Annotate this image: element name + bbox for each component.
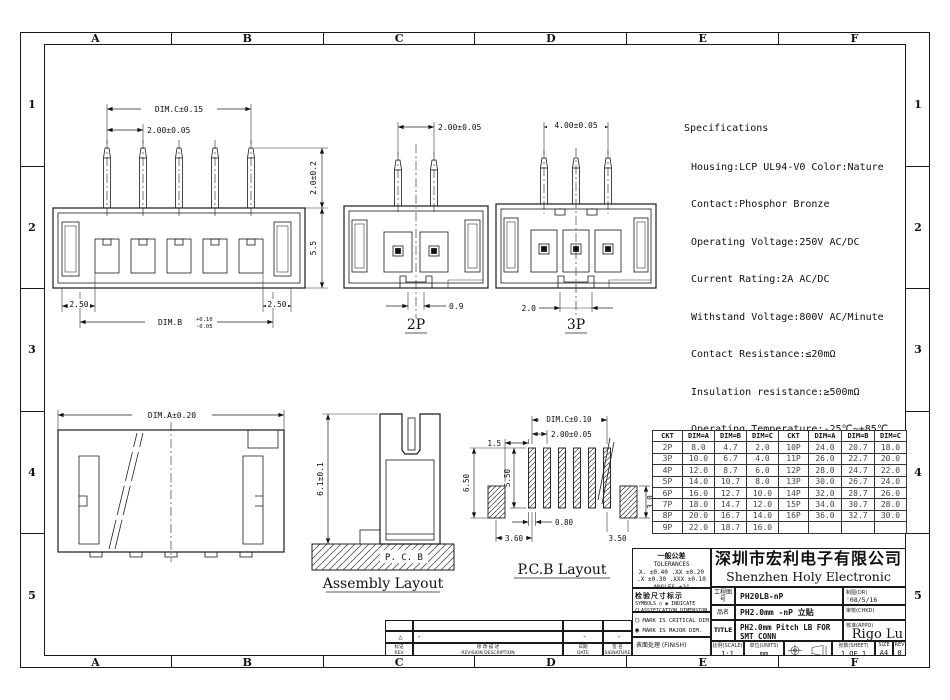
grid-band-right: 1 2 3 4 5 <box>906 44 930 656</box>
dim-label: 6.50 <box>462 473 471 492</box>
header-cn: 标记 <box>395 645 404 650</box>
spec-line: Operating Voltage:250V AC/DC <box>684 237 906 250</box>
units-label: 单位(UNITS) <box>745 642 783 649</box>
dim-label: 3.50 <box>608 534 627 543</box>
dim-label: 2.0 <box>522 304 537 313</box>
critical-dim-text: MARK IS CRITICAL DIM <box>643 618 709 624</box>
pcb-label: P. C. B <box>385 553 423 563</box>
table-cell: 36.0 <box>809 510 842 521</box>
table-header: DIM=A <box>809 431 842 442</box>
table-header: DIM=A <box>683 431 715 442</box>
scale-value: 1:1 <box>712 650 743 656</box>
assembly-layout-label: Assembly Layout <box>322 576 444 592</box>
spec-line: Withstand Voltage:800V AC/Minute <box>684 312 906 325</box>
table-cell: 10P <box>779 442 809 453</box>
table-cell: 34.0 <box>809 499 842 510</box>
pcb-layout-drawing: DIM.C±0.10 2.00±0.05 1.5 6.50 5.50 0.80 … <box>452 410 657 588</box>
spec-line: Contact Resistance:≤20mΩ <box>684 349 906 362</box>
grid-col-label: F <box>779 656 930 668</box>
table-header: CKT <box>653 431 683 442</box>
table-cell: 15P <box>779 499 809 510</box>
table-header: DIM=B <box>715 431 747 442</box>
tolerances-title-cn: 一般公差 <box>658 552 686 560</box>
grid-row-label: 3 <box>20 289 44 412</box>
table-cell: 18.0 <box>683 499 715 510</box>
dim-label: 0.80 <box>555 518 574 527</box>
table-row: 5P14.010.78.013P30.026.724.0 <box>653 476 907 487</box>
table-cell: 14.7 <box>715 499 747 510</box>
spec-line: Insulation resistance:≥500mΩ <box>684 387 906 400</box>
title-line2: SMT CONN <box>740 632 776 641</box>
table-cell: 16.0 <box>747 522 779 533</box>
title-label: TITLE <box>711 620 735 641</box>
grid-row-label: 4 <box>20 412 44 535</box>
dim-label: DIM.C±0.10 <box>546 415 592 424</box>
table-cell: 32.7 <box>842 510 875 521</box>
spec-line: Contact:Phosphor Bronze <box>684 199 906 212</box>
view-label-2p: 2P <box>407 317 425 333</box>
table-cell <box>875 522 907 533</box>
rev-label: REV <box>894 642 905 648</box>
grid-row-label: 2 <box>906 167 930 290</box>
dim-tolerance-upper: +0.10 <box>196 317 213 323</box>
drawn-cell: 制图(DR) '08/5/16 <box>843 587 906 605</box>
inspection-title-cn: 检验尺寸标示 <box>635 592 683 600</box>
table-cell: 4.0 <box>747 453 779 464</box>
critical-dim-icon: ◯ <box>635 616 639 624</box>
title-line1: PH2.0mm Pitch LB FOR <box>740 623 830 632</box>
specifications-block: Specifications Housing:LCP UL94-V0 Color… <box>684 98 906 462</box>
table-cell: 16P <box>779 510 809 521</box>
header-cn: 日期 <box>579 645 588 650</box>
finish-cell: 表面处理 (FINISH) <box>632 637 711 656</box>
grid-col-label: D <box>475 32 627 44</box>
dimension-table: CKT DIM=A DIM=B DIM=C CKT DIM=A DIM=B DI… <box>652 430 907 534</box>
scale-label: 比例(SCALE) <box>712 642 743 649</box>
table-header: DIM=B <box>842 431 875 442</box>
revision-desc: - <box>413 631 563 643</box>
table-cell: 30.0 <box>809 476 842 487</box>
projection-symbol-cell <box>784 641 832 656</box>
table-cell: 22.0 <box>683 522 715 533</box>
dimensions-5p: DIM.C±0.15 2.00±0.05 2.0±0.2 5.5 2.50 2.… <box>62 102 328 330</box>
title-value-cell: PH2.0mm Pitch LB FOR SMT CONN <box>735 620 843 641</box>
table-cell: 18.0 <box>875 442 907 453</box>
table-cell: 10.0 <box>747 487 779 498</box>
table-cell: 22.0 <box>875 465 907 476</box>
major-dim-icon: ◉ <box>635 626 639 634</box>
grid-col-label: B <box>172 656 324 668</box>
header-en: REVISION DESCRIPTION <box>461 651 514 656</box>
dim-tolerance-lower: -0.05 <box>196 324 213 330</box>
inspection-line: SYMBOLS ◯ ◉ INDICATE <box>635 601 695 607</box>
dimensions-3p: 4.00±0.05 2.0 <box>522 119 613 313</box>
dim-label: 2.00±0.05 <box>551 430 592 439</box>
dim-label: DIM.B <box>158 318 182 327</box>
dim-label: 4.00±0.05 <box>554 121 598 130</box>
revision-header-rev: 标记 REV <box>385 643 413 656</box>
revision-mark: △ <box>385 631 413 643</box>
table-header: DIM=C <box>875 431 907 442</box>
sheet-cell: 张数(SHEET) 1 OF 1 <box>832 641 875 656</box>
units-value: mm <box>745 650 783 656</box>
table-cell: 26.0 <box>809 453 842 464</box>
scale-cell: 比例(SCALE) 1:1 <box>711 641 744 656</box>
dim-label: 3.60 <box>505 534 524 543</box>
major-dim-text: MARK IS MAJOR DIM. <box>643 628 703 634</box>
rev-value: 0 <box>894 649 905 656</box>
spec-line: Housing:LCP UL94-V0 Color:Nature <box>684 162 906 175</box>
front-view-3p-drawing: 4.00±0.05 2.0 3P <box>489 114 667 338</box>
view-label-3p: 3P <box>567 317 585 333</box>
table-cell: 24.0 <box>875 476 907 487</box>
dim-label: 0.9 <box>449 302 464 311</box>
part-no-value: PH20LB-nP <box>735 587 843 605</box>
revision-header-desc: 修 改 描 述 REVISION DESCRIPTION <box>413 643 563 656</box>
grid-band-bottom: A B C D E F <box>20 656 930 668</box>
tolerances-title: TOLERANCES <box>653 561 689 568</box>
assembly-top-view-drawing: DIM.A±0.20 <box>52 404 292 572</box>
inspection-symbols-cell: 检验尺寸标示 SYMBOLS ◯ ◉ INDICATE CLASSIFICATI… <box>632 588 711 612</box>
table-cell: 24.0 <box>809 442 842 453</box>
front-view-2p-drawing: 2.00±0.05 0.9 2P <box>336 114 501 338</box>
grid-col-label: A <box>20 656 172 668</box>
table-cell: 20.0 <box>875 453 907 464</box>
units-cell: 单位(UNITS) mm <box>744 641 784 656</box>
grid-col-label: F <box>779 32 930 44</box>
table-cell <box>809 522 842 533</box>
table-cell: 4.7 <box>715 442 747 453</box>
revision-strip: △ - - - 标记 REV 修 改 描 述 REVISION DESCRIPT… <box>385 620 632 656</box>
rev-cell: REV 0 <box>893 641 906 656</box>
dim-label: 6.1±0.1 <box>316 462 325 496</box>
table-cell: 26.0 <box>875 487 907 498</box>
table-cell: 9P <box>653 522 683 533</box>
size-label: SIZE <box>876 642 892 648</box>
third-angle-projection-icon <box>785 644 831 656</box>
dim-label: 2.50 <box>69 300 88 309</box>
grid-row-label: 5 <box>20 534 44 656</box>
table-cell: 8P <box>653 510 683 521</box>
dim-label: 2.00±0.05 <box>147 126 191 135</box>
sheet-value: 1 OF 1 <box>833 650 874 656</box>
dim-label: 1.5 <box>487 439 501 448</box>
tolerances-cell: 一般公差 TOLERANCES X. ±0.40 .XX ±0.20 .X ±0… <box>632 548 711 588</box>
connector-side-outline <box>360 414 440 544</box>
table-cell: 11P <box>779 453 809 464</box>
dim-label: 5.5 <box>309 241 318 256</box>
table-cell: 28.0 <box>875 499 907 510</box>
grid-row-label: 4 <box>906 412 930 535</box>
table-cell: 30.0 <box>875 510 907 521</box>
finish-label: 表面处理 (FINISH) <box>636 642 686 649</box>
table-row: 2P8.04.72.010P24.020.718.0 <box>653 442 907 453</box>
table-cell: 6P <box>653 487 683 498</box>
table-cell: 26.7 <box>842 476 875 487</box>
grid-row-label: 1 <box>906 44 930 167</box>
dim-label: 2.00±0.05 <box>438 123 482 132</box>
grid-band-left: 1 2 3 4 5 <box>20 44 44 656</box>
product-name-value: PH2.0mm -nP 立贴 <box>735 605 843 620</box>
checked-cell: 审核(CHKD) <box>843 605 906 620</box>
grid-row-label: 1 <box>20 44 44 167</box>
header-en: REV <box>394 651 403 656</box>
table-cell: 16.0 <box>683 487 715 498</box>
table-cell: 16.7 <box>715 510 747 521</box>
table-cell: 13P <box>779 476 809 487</box>
product-name-label: 品名 <box>711 605 735 620</box>
table-cell: 10.7 <box>715 476 747 487</box>
size-cell: SIZE A4 <box>875 641 893 656</box>
header-cn: 签 名 <box>612 645 622 650</box>
revision-date: - <box>563 631 603 643</box>
header-en: SIGNATURE <box>605 651 631 656</box>
table-cell: 28.0 <box>809 465 842 476</box>
header-cn: 修 改 描 述 <box>477 645 499 650</box>
housing-outline <box>58 422 284 562</box>
sheet-label: 张数(SHEET) <box>833 642 874 649</box>
tolerance-line: .X ±0.30 .XXX ±0.10 <box>637 576 706 583</box>
table-cell: 22.7 <box>842 453 875 464</box>
table-cell: 20.7 <box>842 442 875 453</box>
table-cell: 8.7 <box>715 465 747 476</box>
table-cell: 3P <box>653 453 683 464</box>
table-row: 7P18.014.712.015P34.030.728.0 <box>653 499 907 510</box>
table-cell: 12P <box>779 465 809 476</box>
dim-label: DIM.C±0.15 <box>155 105 203 114</box>
table-cell: 5P <box>653 476 683 487</box>
table-cell: 10.0 <box>683 453 715 464</box>
company-cell: 深圳市宏利电子有限公司 Shenzhen Holy Electronic Co.… <box>711 548 906 587</box>
table-cell: 2.0 <box>747 442 779 453</box>
revision-header-sig: 签 名 SIGNATURE <box>603 643 632 656</box>
specifications-title: Specifications <box>684 123 906 136</box>
part-no-label: 工程图号 <box>711 587 735 605</box>
table-header: CKT <box>779 431 809 442</box>
approved-cell: 核准(APPD) Rigo Lu <box>843 620 906 641</box>
checked-label: 审核(CHKD) <box>846 607 905 614</box>
grid-row-label: 2 <box>20 167 44 290</box>
table-cell: 14.0 <box>683 476 715 487</box>
title-block: 一般公差 TOLERANCES X. ±0.40 .XX ±0.20 .X ±0… <box>632 548 906 656</box>
pcb-layout-label: P.C.B Layout <box>517 562 606 578</box>
revision-sig: - <box>603 631 632 643</box>
table-cell: 7P <box>653 499 683 510</box>
company-name-cn: 深圳市宏利电子有限公司 <box>712 549 905 569</box>
header-en: DATE <box>577 651 589 656</box>
grid-col-label: E <box>627 32 779 44</box>
table-cell: 20.0 <box>683 510 715 521</box>
table-row: 6P16.012.710.014P32.028.726.0 <box>653 487 907 498</box>
drawing-sheet: A B C D E F A B C D E F 1 2 3 4 5 1 2 3 … <box>0 0 950 700</box>
table-cell: 8.0 <box>683 442 715 453</box>
dim-table-body: 2P8.04.72.010P24.020.718.03P10.06.74.011… <box>653 442 907 533</box>
company-name-en: Shenzhen Holy Electronic Co.,Ltd <box>712 569 905 587</box>
table-cell: 14.0 <box>747 510 779 521</box>
grid-col-label: C <box>324 656 476 668</box>
grid-row-label: 3 <box>906 289 930 412</box>
table-row: 9P22.018.716.0 <box>653 522 907 533</box>
revision-header-date: 日期 DATE <box>563 643 603 656</box>
table-cell: 12.0 <box>683 465 715 476</box>
front-view-5p-drawing: DIM.C±0.15 2.00±0.05 2.0±0.2 5.5 2.50 2.… <box>48 96 338 334</box>
table-cell <box>842 522 875 533</box>
approved-signature: Rigo Lu <box>846 627 905 641</box>
grid-col-label: A <box>20 32 172 44</box>
table-cell: 28.7 <box>842 487 875 498</box>
grid-col-label: C <box>324 32 476 44</box>
grid-col-label: E <box>627 656 779 668</box>
body-5p <box>53 208 305 288</box>
size-value: A4 <box>876 649 892 656</box>
dim-label: 2.50 <box>267 300 286 309</box>
grid-band-top: A B C D E F <box>20 32 930 44</box>
table-header-row: CKT DIM=A DIM=B DIM=C CKT DIM=A DIM=B DI… <box>653 431 907 442</box>
table-row: 8P20.016.714.016P36.032.730.0 <box>653 510 907 521</box>
spec-line: Current Rating:2A AC/DC <box>684 274 906 287</box>
table-cell: 14P <box>779 487 809 498</box>
table-cell: 12.0 <box>747 499 779 510</box>
dim-label: 2.0±0.2 <box>309 161 318 195</box>
table-cell: 6.0 <box>747 465 779 476</box>
table-cell: 24.7 <box>842 465 875 476</box>
table-row: 3P10.06.74.011P26.022.720.0 <box>653 453 907 464</box>
table-cell <box>779 522 809 533</box>
dim-label: DIM.A±0.20 <box>148 411 196 420</box>
table-row: 4P12.08.76.012P28.024.722.0 <box>653 465 907 476</box>
grid-col-label: B <box>172 32 324 44</box>
table-cell: 32.0 <box>809 487 842 498</box>
table-header: DIM=C <box>747 431 779 442</box>
table-cell: 30.7 <box>842 499 875 510</box>
tolerance-line: X. ±0.40 .XX ±0.20 <box>639 569 704 576</box>
mark-legend-cell: ◯ MARK IS CRITICAL DIM ◉ MARK IS MAJOR D… <box>632 612 711 637</box>
table-cell: 2P <box>653 442 683 453</box>
table-cell: 4P <box>653 465 683 476</box>
pins-5p <box>104 140 255 216</box>
grid-col-label: D <box>475 656 627 668</box>
table-cell: 12.7 <box>715 487 747 498</box>
assembly-side-view-drawing: 6.1±0.1 P. C. B Assembly Layout <box>308 402 458 594</box>
table-cell: 8.0 <box>747 476 779 487</box>
drawn-date: '08/5/16 <box>846 596 877 604</box>
table-cell: 6.7 <box>715 453 747 464</box>
dim-label: 5.50 <box>503 468 512 487</box>
drawn-label: 制图(DR) <box>846 589 905 596</box>
table-cell: 18.7 <box>715 522 747 533</box>
grid-row-label: 5 <box>906 534 930 656</box>
